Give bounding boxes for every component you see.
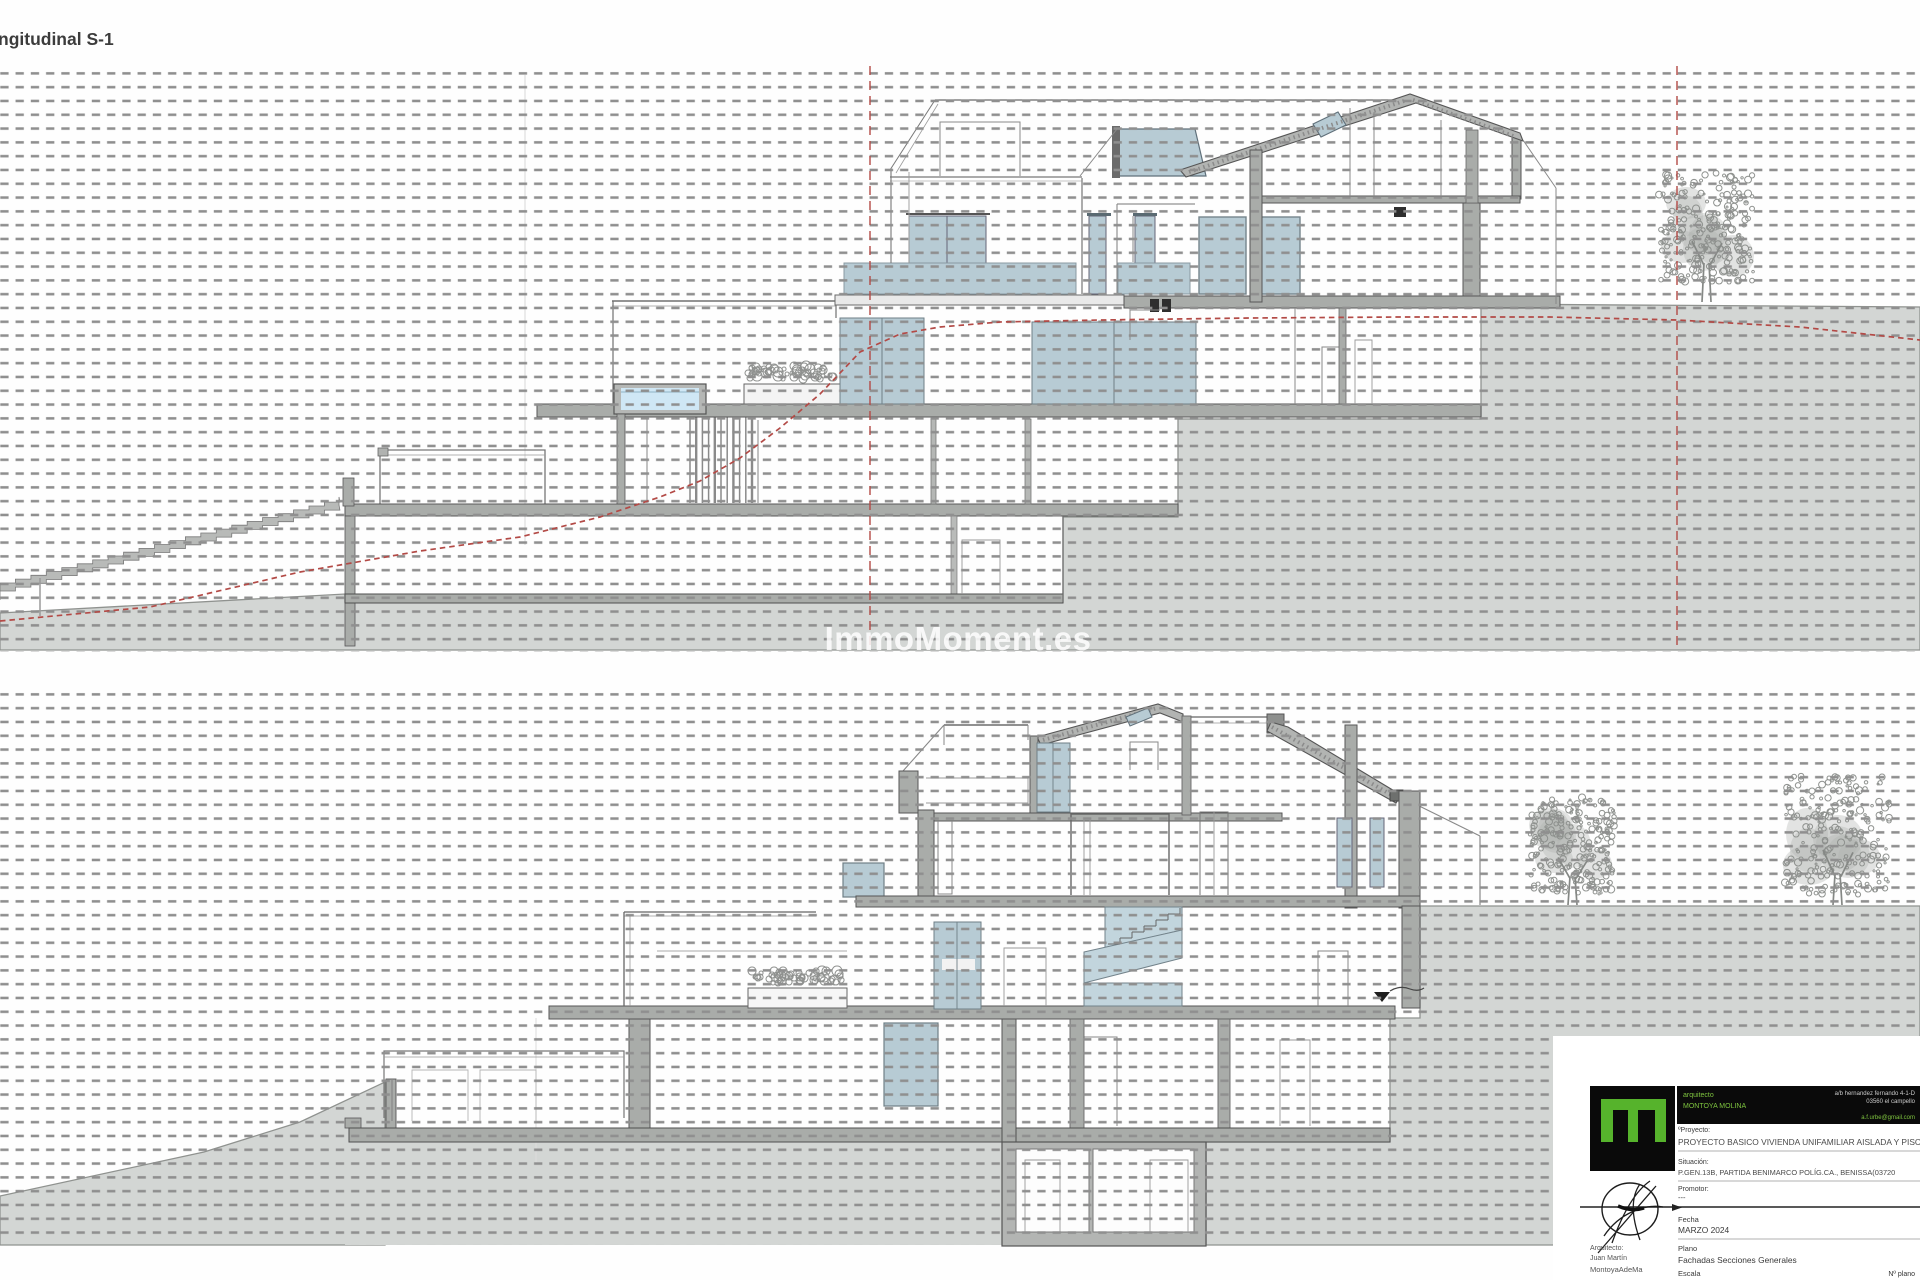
svg-text:ImmoMoment.es: ImmoMoment.es xyxy=(825,620,1092,657)
svg-text:Escala: Escala xyxy=(1678,1269,1701,1278)
svg-text:arquitecto: arquitecto xyxy=(1683,1092,1714,1099)
svg-text:P.GEN.13B, PARTIDA BENIMARCO P: P.GEN.13B, PARTIDA BENIMARCO POLÍG.CA., … xyxy=(1678,1168,1895,1177)
svg-text:ngitudinal S-1: ngitudinal S-1 xyxy=(0,29,114,49)
svg-text:Plano: Plano xyxy=(1678,1244,1697,1253)
svg-text:Situación:: Situación: xyxy=(1678,1159,1709,1166)
svg-text:Fecha: Fecha xyxy=(1678,1215,1700,1224)
svg-text:03560 el campello: 03560 el campello xyxy=(1866,1099,1915,1105)
svg-text:PROYECTO BASICO VIVIENDA UNIFA: PROYECTO BASICO VIVIENDA UNIFAMILIAR AIS… xyxy=(1678,1137,1920,1147)
svg-text:Promotor:: Promotor: xyxy=(1678,1186,1709,1193)
svg-text:a/b hernandez fernando 4-1-D: a/b hernandez fernando 4-1-D xyxy=(1835,1091,1916,1097)
svg-text:Arquitecto:: Arquitecto: xyxy=(1590,1245,1624,1252)
svg-text:Fachadas Secciones Generales: Fachadas Secciones Generales xyxy=(1678,1255,1797,1265)
svg-text:a.f.urbe@gmail.com: a.f.urbe@gmail.com xyxy=(1861,1115,1915,1121)
svg-text:MontoyaAdeMa: MontoyaAdeMa xyxy=(1590,1265,1643,1274)
svg-text:MARZO 2024: MARZO 2024 xyxy=(1678,1225,1730,1235)
svg-text:ºProyecto:: ºProyecto: xyxy=(1678,1127,1710,1134)
svg-text:Juan Martín: Juan Martín xyxy=(1590,1255,1627,1262)
svg-text:MONTOYA MOLINA: MONTOYA MOLINA xyxy=(1683,1103,1746,1110)
svg-text:Nº plano: Nº plano xyxy=(1888,1271,1915,1278)
svg-text:---: --- xyxy=(1678,1193,1686,1202)
